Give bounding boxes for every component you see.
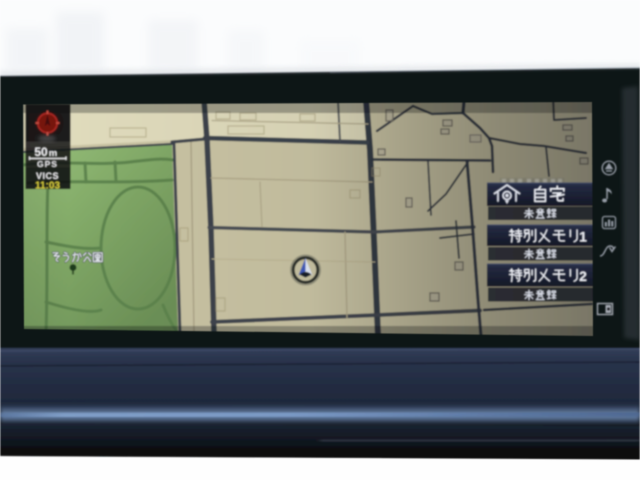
svg-text:1: 1 xyxy=(579,229,587,245)
svg-text:VICS: VICS xyxy=(36,171,59,181)
svg-text:GPS: GPS xyxy=(37,159,58,169)
svg-text:50: 50 xyxy=(34,145,48,159)
svg-text:m: m xyxy=(49,148,57,159)
svg-text:2: 2 xyxy=(579,268,587,284)
svg-text:11:03: 11:03 xyxy=(35,181,60,192)
